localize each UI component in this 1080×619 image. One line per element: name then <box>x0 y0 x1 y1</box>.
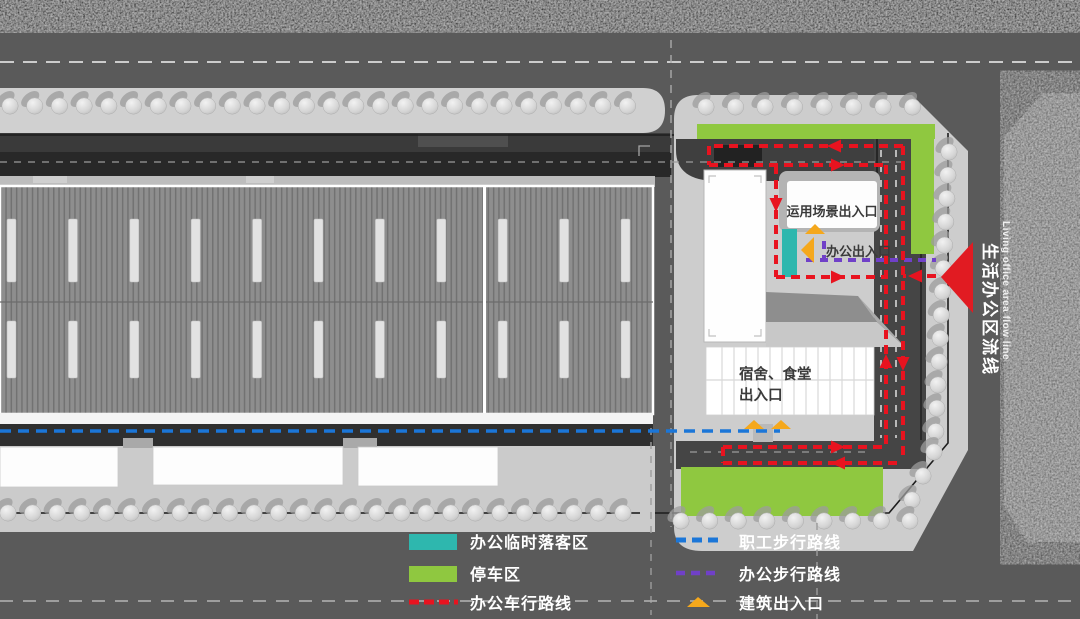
legend-label: 办公临时落客区 <box>470 533 589 552</box>
site-plan: 运用场景出入口 办公出入口 宿舍、食堂 出入口 生活办公区流线 Living o… <box>0 0 1080 619</box>
connector-stub-2 <box>343 438 377 448</box>
dorm-entrance-label-line2: 出入口 <box>739 386 783 404</box>
legend-label: 建筑出入口 <box>739 594 824 613</box>
dorm-entrance-label-line1: 宿舍、食堂 <box>739 365 812 383</box>
connector-stub-1 <box>123 438 153 448</box>
green-swatch-icon <box>409 566 457 582</box>
canopy-building-3 <box>358 447 498 486</box>
office-tower <box>704 170 766 342</box>
parking-strip-top <box>697 124 935 139</box>
office-dropoff-zone <box>782 229 797 277</box>
warehouse-south-apron <box>0 413 653 424</box>
warehouse-south-lane <box>0 424 653 446</box>
flow-line-label-en: Living office area flow line <box>1000 221 1011 360</box>
access-road <box>0 133 697 177</box>
canopy-building-1 <box>0 447 118 487</box>
top-offsite-texture <box>0 0 1080 31</box>
warehouse-divider <box>483 187 486 413</box>
canopy-building-2 <box>153 447 343 485</box>
office-entrance-label: 办公出入口 <box>826 244 891 259</box>
scene-entrance-label: 运用场景出入口 <box>786 204 877 219</box>
right-offsite-texture <box>1004 93 1080 542</box>
legend-label: 职工步行路线 <box>739 533 841 552</box>
legend-item-dropoff: 办公临时落客区 <box>409 533 589 552</box>
teal-swatch-icon <box>409 534 457 550</box>
legend-label: 办公步行路线 <box>739 565 841 584</box>
warehouse-roof <box>0 186 653 414</box>
legend-label: 停车区 <box>470 565 521 584</box>
flow-line-label-cn: 生活办公区流线 <box>980 243 1000 376</box>
parking-strip-right <box>911 124 934 254</box>
legend-label: 办公车行路线 <box>470 594 572 613</box>
warehouse-building <box>0 176 655 446</box>
